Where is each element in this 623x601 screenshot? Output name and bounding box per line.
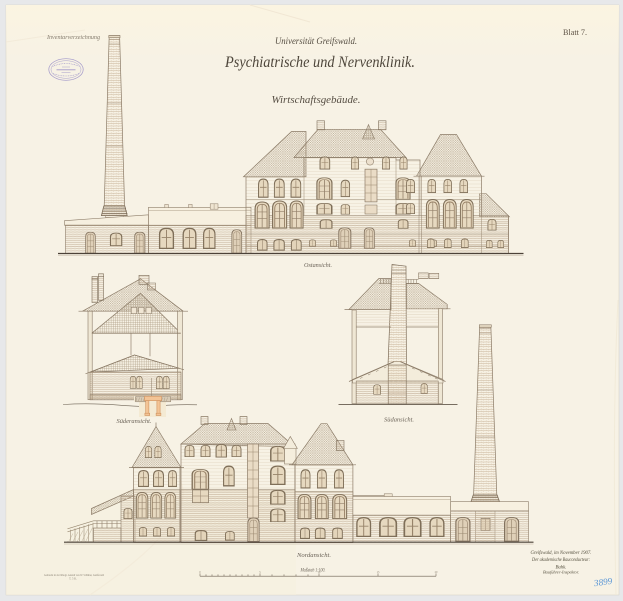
svg-text:Der akademische Bauconducteur:: Der akademische Bauconducteur: <box>531 557 590 563</box>
svg-text:Psychiatrische und Nervenklini: Psychiatrische und Nervenklinik. <box>224 54 415 71</box>
svg-text:Blatt 7.: Blatt 7. <box>563 28 587 37</box>
svg-text:Universität Greifswald.: Universität Greifswald. <box>275 36 357 47</box>
svg-text:Süderansicht.: Süderansicht. <box>117 418 152 425</box>
svg-text:T. 5 K.: T. 5 K. <box>69 578 77 581</box>
svg-text:Maßstab 1:100.: Maßstab 1:100. <box>300 567 326 574</box>
svg-text:Inventarverzeichnung: Inventarverzeichnung <box>46 35 100 41</box>
svg-text:Südansicht.: Südansicht. <box>384 417 414 424</box>
svg-text:Nordansicht.: Nordansicht. <box>296 552 331 559</box>
svg-text:Greifswald, im November 1907.: Greifswald, im November 1907. <box>531 549 592 556</box>
svg-text:Bauführer-Inspektor.: Bauführer-Inspektor. <box>543 570 579 575</box>
svg-text:Ostansicht.: Ostansicht. <box>304 262 332 269</box>
svg-text:Wirtschaftsgebäude.: Wirtschaftsgebäude. <box>272 95 361 106</box>
